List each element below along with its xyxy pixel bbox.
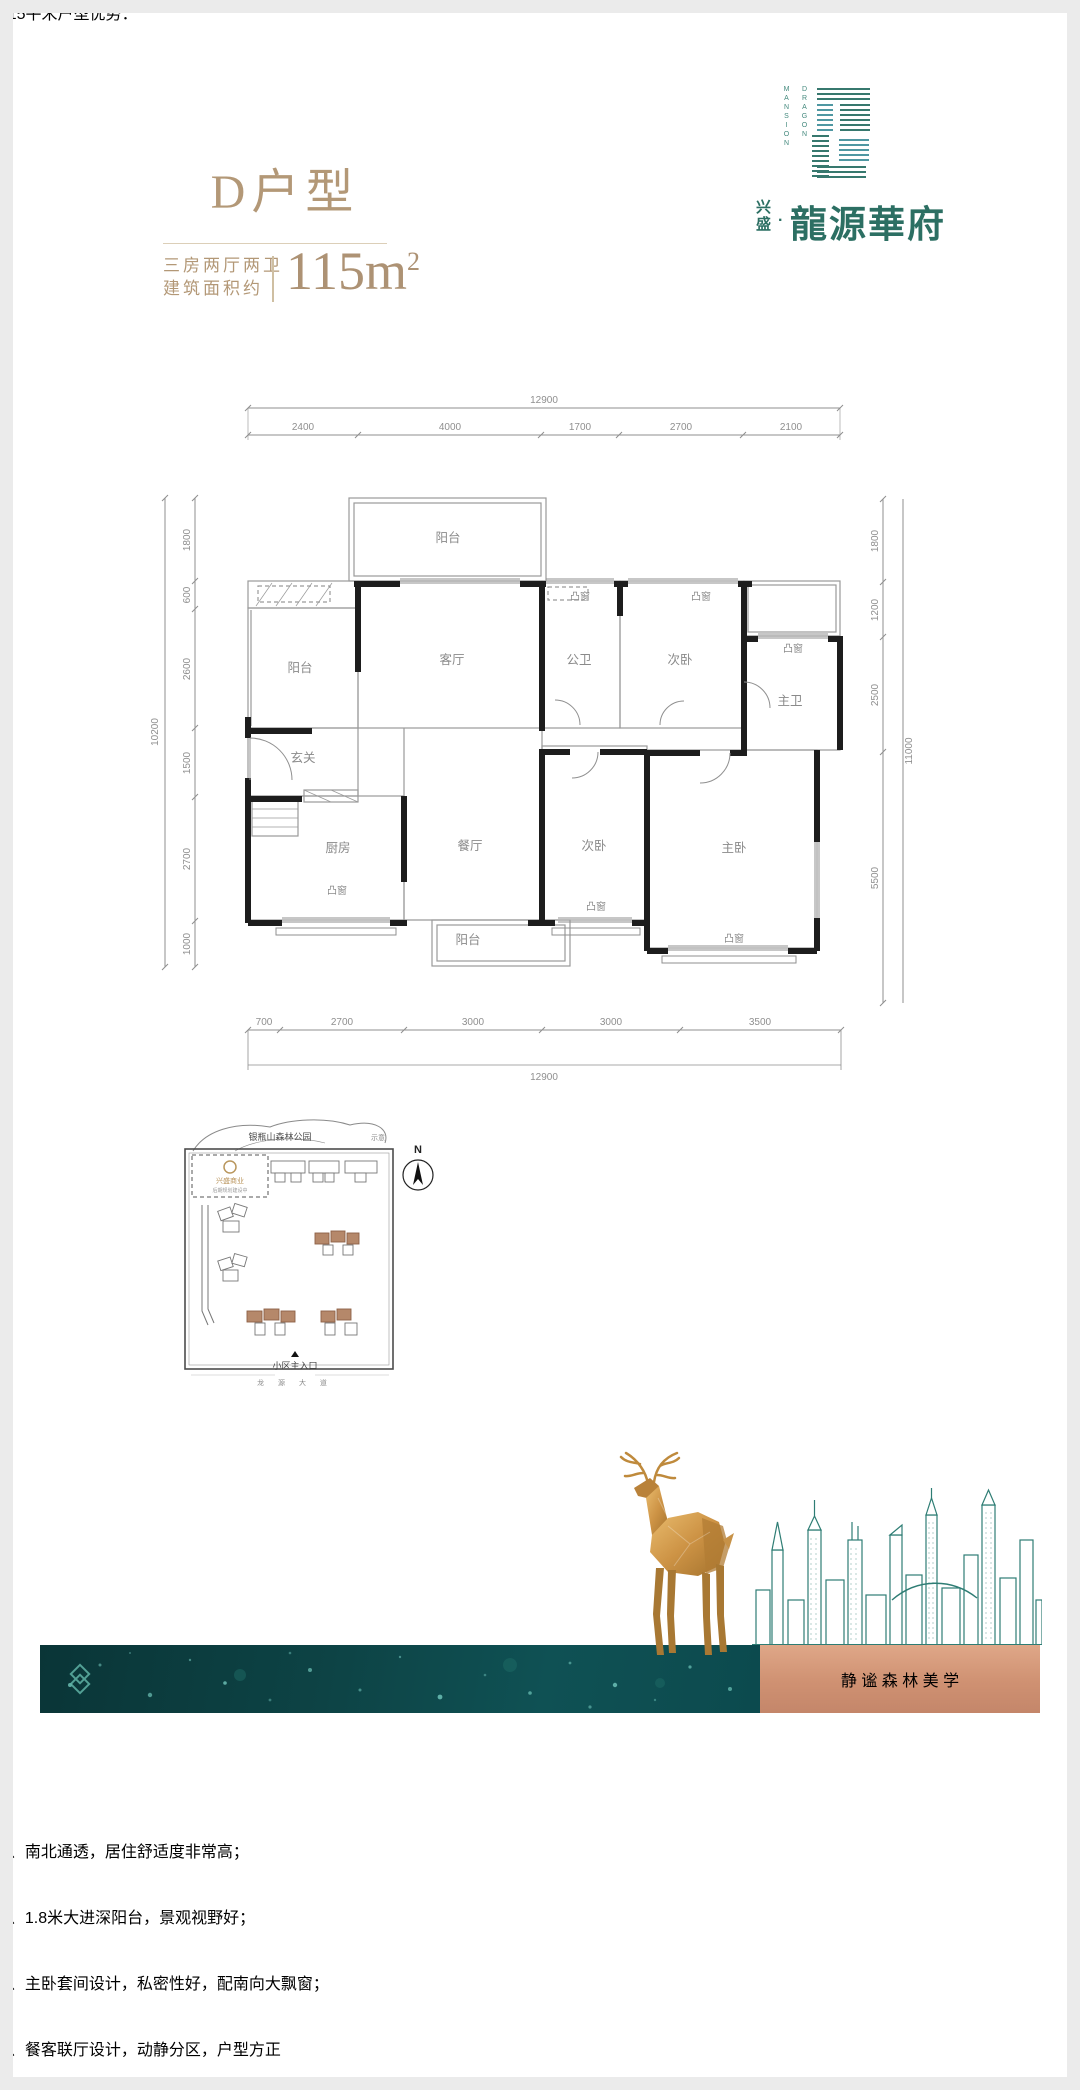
building-cluster (271, 1161, 377, 1182)
room-label: 餐厅 (457, 838, 482, 853)
logo-cn-small: 兴盛 (756, 200, 771, 234)
room-label: 公卫 (566, 653, 591, 667)
logo-en-mansion: MANSION (781, 86, 791, 149)
building-cluster (218, 1203, 248, 1232)
siteplan-map: 银瓶山森林公园 示意 兴盛商业 后期规划建设中 N (175, 1113, 455, 1398)
logo-cn-main: 龍源華府 (790, 194, 946, 248)
logo-dot: · (778, 212, 783, 230)
dimension-lines (162, 405, 903, 1070)
svg-text:4000: 4000 (439, 422, 462, 433)
siteplan-note: 示意 (371, 1133, 385, 1142)
advantages-heading: 115平米户型优势： (0, 0, 138, 24)
legs (653, 1564, 727, 1655)
room-label: 次卧 (667, 653, 692, 667)
svg-text:N: N (414, 1144, 422, 1156)
road-label: 龙 源 大 道 (257, 1378, 333, 1387)
site-road (202, 1205, 214, 1325)
building-cluster-highlight (315, 1231, 359, 1255)
svg-text:1800: 1800 (870, 529, 881, 552)
advantage-item-2: 2、1.8米大进深阳台，景观视野好； (0, 1904, 255, 1928)
svg-text:1700: 1700 (569, 422, 592, 433)
svg-text:700: 700 (256, 1017, 273, 1028)
svg-text:2500: 2500 (870, 683, 881, 706)
building-cluster-highlight (321, 1309, 357, 1335)
building-cluster (218, 1254, 247, 1281)
svg-text:3000: 3000 (462, 1017, 485, 1028)
band-copper-section: 静 谧 森 林 美 学 (760, 1645, 1040, 1713)
room-label: 厨房 (325, 840, 350, 855)
room-label: 客厅 (439, 652, 464, 667)
svg-text:10200: 10200 (150, 718, 161, 746)
bay-label: 凸窗 (327, 884, 347, 897)
svg-text:2600: 2600 (182, 657, 193, 680)
room-label: 阳台 (287, 660, 312, 675)
svg-text:2700: 2700 (182, 847, 193, 870)
svg-text:3500: 3500 (749, 1017, 772, 1028)
north-compass-icon: N (403, 1144, 433, 1190)
advantage-item-1: 1、南北通透，居住舒适度非常高； (0, 1838, 249, 1862)
svg-text:12900: 12900 (530, 1072, 558, 1083)
parcel-note: 后期规划建设中 (212, 1187, 247, 1194)
entrance-label: 小区主入口 (272, 1360, 317, 1371)
bay-label: 凸窗 (783, 642, 803, 655)
svg-text:1200: 1200 (870, 598, 881, 621)
svg-text:1000: 1000 (182, 932, 193, 955)
parcel-box: 兴盛商业 后期规划建设中 (192, 1155, 268, 1197)
svg-text:2400: 2400 (292, 422, 315, 433)
decorative-band: 静 谧 森 林 美 学 (40, 1645, 1040, 1713)
building-cluster-highlight (247, 1309, 295, 1335)
svg-text:2100: 2100 (780, 422, 803, 433)
doors (250, 682, 770, 783)
bay-label: 凸窗 (586, 900, 606, 913)
room-label: 阳台 (455, 932, 480, 947)
svg-text:600: 600 (182, 586, 193, 603)
bay-label: 凸窗 (691, 590, 711, 603)
logo-en-dragon: DRAGON (799, 86, 809, 140)
room-label: 玄关 (290, 750, 315, 765)
svg-text:3000: 3000 (600, 1017, 623, 1028)
park-label: 银瓶山森林公园 (248, 1131, 311, 1142)
room-label: 次卧 (581, 839, 606, 853)
room-label: 主卫 (777, 694, 802, 708)
svg-text:5500: 5500 (870, 866, 881, 889)
spec-line1: 三房两厅两卫 (163, 254, 283, 277)
svg-text:2700: 2700 (331, 1017, 354, 1028)
bay-label: 凸窗 (724, 932, 744, 945)
band-logo-icon (66, 1665, 94, 1693)
bay-label: 凸窗 (570, 590, 590, 603)
advantage-item-3: 3、主卧套间设计，私密性好，配南向大飘窗； (0, 1970, 329, 1994)
svg-text:2700: 2700 (670, 422, 693, 433)
advantage-item-4: 4、餐客联厅设计，动静分区，户型方正 (0, 2036, 281, 2060)
gold-deer-illustration (598, 1448, 768, 1660)
svg-text:1800: 1800 (182, 528, 193, 551)
band-tagline: 静 谧 森 林 美 学 (841, 1667, 959, 1691)
parcel-title: 兴盛商业 (216, 1176, 244, 1185)
flyer-page: D户型 三房两厅两卫 建筑面积约 115m2 MANSION DRAGON 兴盛… (0, 0, 1080, 2090)
room-label: 阳台 (435, 530, 460, 545)
floorplan-drawing: 12900 2400 4000 1700 2700 2100 700 2700 … (100, 280, 960, 1090)
page-title: D户型 (160, 152, 410, 222)
city-skyline-illustration (752, 1480, 1042, 1645)
entrance-marker-icon (291, 1351, 299, 1357)
svg-text:12900: 12900 (530, 395, 558, 406)
bay-window-labels: 凸窗 凸窗 凸窗 凸窗 凸窗 凸窗 (327, 590, 803, 945)
svg-text:1500: 1500 (182, 751, 193, 774)
room-label: 主卧 (721, 841, 746, 855)
svg-text:11000: 11000 (904, 737, 915, 765)
